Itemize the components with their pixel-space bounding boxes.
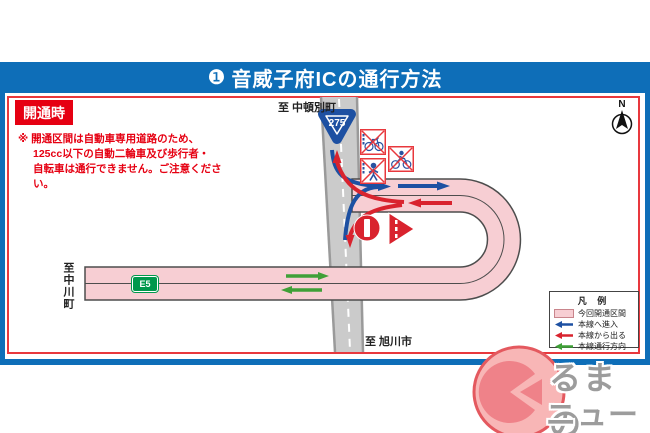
watermark-text-line2: ニュース <box>546 390 650 433</box>
no-entry-sign-icon <box>354 215 380 241</box>
warning-text: ※ 開通区間は自動車専用道路のため、 125cc以下の自動二輪車及び歩行者・ 自… <box>18 132 228 192</box>
no-entry-paddle-icon <box>389 213 414 245</box>
destination-label-west: 至中川町 <box>60 262 76 310</box>
no-pedestrian-sign-icon <box>361 159 386 184</box>
compass-icon: N <box>613 99 632 134</box>
expressway-number-badge: E5 <box>132 276 158 292</box>
route-number: 275 <box>329 118 346 129</box>
no-bicycle-sign-icon <box>361 130 386 155</box>
status-badge: 開通時 <box>15 100 73 125</box>
no-motorcycle-sign-icon <box>389 147 414 172</box>
compass-north-label: N <box>618 99 625 110</box>
destination-label-south: 至 旭川市 <box>365 333 412 349</box>
warning-line: 125cc以下の自動二輪車及び歩行者・ <box>18 147 228 162</box>
warning-line: 自転車は通行できません。ご注意ください。 <box>18 162 228 192</box>
infographic-page: ❶ 音威子府ICの通行方法 凡 例 今回開通区間 本線へ進入 本線から出る <box>0 0 650 433</box>
destination-label-north: 至 中頓別町 <box>278 99 336 115</box>
warning-line: ※ 開通区間は自動車専用道路のため、 <box>18 132 228 147</box>
